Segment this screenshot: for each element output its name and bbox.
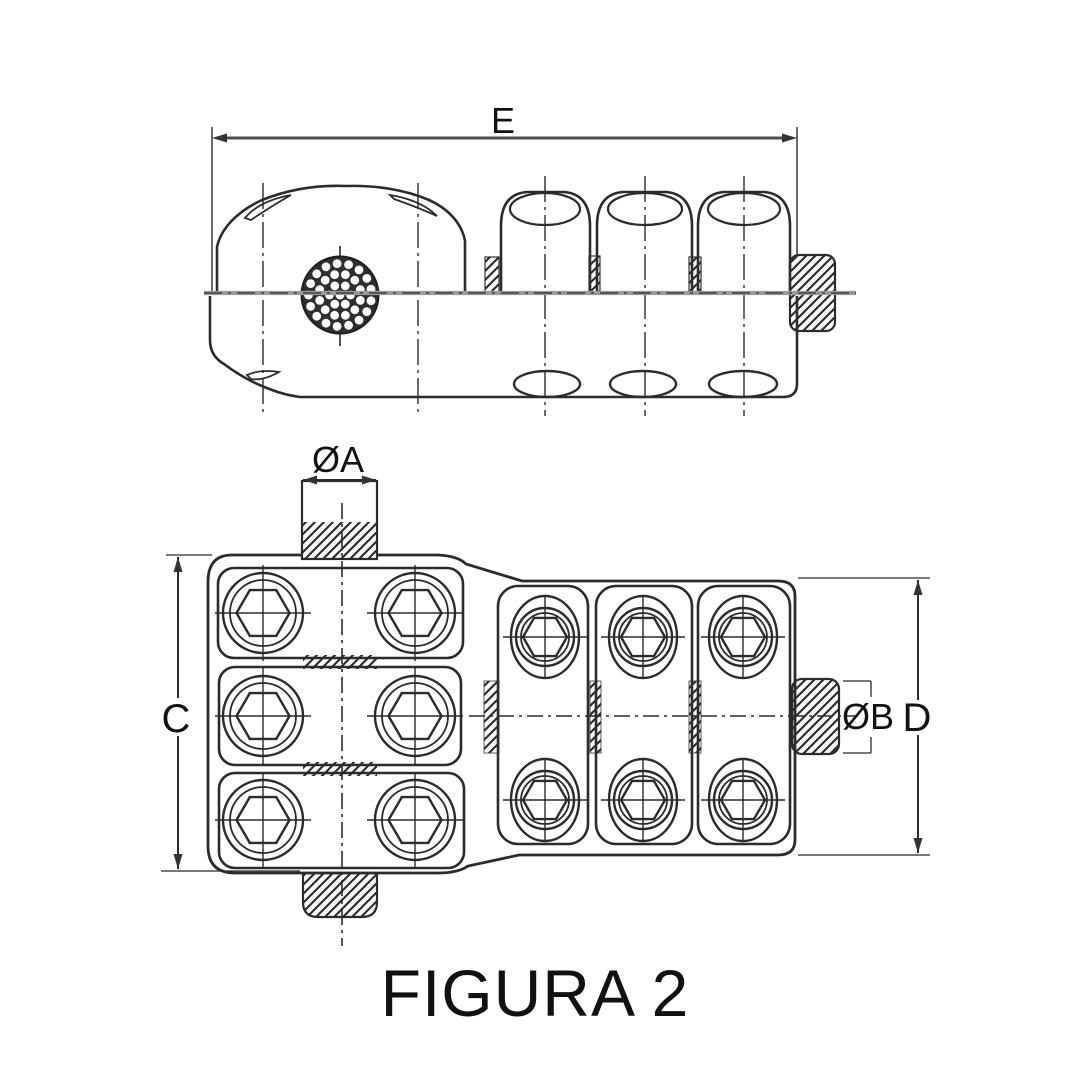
cable-cross-section (302, 246, 379, 346)
cable-stub-top (302, 481, 377, 559)
technical-drawing: E (0, 0, 1080, 1080)
cable-stub-bottom (303, 873, 377, 917)
hatched-strips-top-view (485, 256, 701, 292)
dim-label-e: E (491, 100, 515, 141)
hex-bolts-right (503, 595, 785, 842)
figure-caption: FIGURA 2 (381, 956, 690, 1030)
hex-bolts-left (215, 565, 463, 868)
dim-label-ob: ØB (842, 696, 894, 737)
dimension-oa: ØA (303, 439, 376, 485)
bottom-view: ØA C D ØB (161, 439, 931, 946)
hatched-rod-gap (484, 681, 499, 753)
hatched-rod-gap (689, 681, 701, 753)
hatched-rod-gap (590, 681, 601, 753)
dimension-ob: ØB (842, 681, 894, 753)
dim-label-d: D (903, 696, 932, 740)
figure-canvas: E (0, 0, 1080, 1080)
dim-label-c: C (162, 697, 191, 741)
top-view: E (204, 100, 856, 417)
dim-label-oa: ØA (312, 439, 364, 480)
